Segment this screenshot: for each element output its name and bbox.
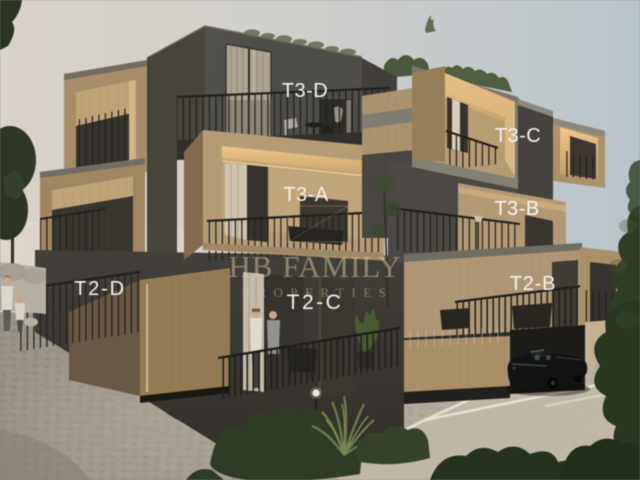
svg-text:T3-D: T3-D bbox=[282, 80, 328, 102]
svg-text:T3-B: T3-B bbox=[494, 198, 539, 220]
svg-text:T2-B: T2-B bbox=[510, 273, 557, 295]
svg-text:T3-A: T3-A bbox=[283, 184, 329, 206]
svg-text:T3-C: T3-C bbox=[495, 125, 541, 147]
svg-text:T2-D: T2-D bbox=[74, 278, 126, 300]
svg-text:T2-C: T2-C bbox=[287, 291, 344, 314]
svg-text:HB FAMILY: HB FAMILY bbox=[228, 249, 401, 284]
